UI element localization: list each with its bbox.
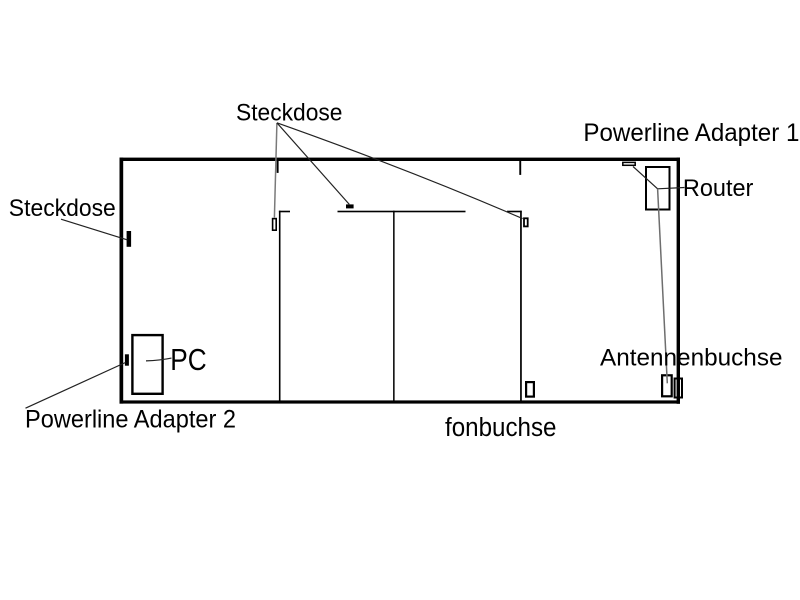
svg-text:PC: PC: [170, 342, 206, 377]
svg-text:Powerline Adapter 2: Powerline Adapter 2: [25, 405, 236, 433]
svg-text:Steckdose: Steckdose: [236, 99, 343, 126]
svg-text:Steckdose: Steckdose: [9, 195, 116, 222]
svg-text:fonbuchse: fonbuchse: [445, 414, 557, 442]
svg-text:Router: Router: [683, 175, 754, 202]
svg-text:Powerline Adapter 1: Powerline Adapter 1: [583, 119, 799, 147]
svg-text:Antennenbuchse: Antennenbuchse: [600, 344, 783, 371]
